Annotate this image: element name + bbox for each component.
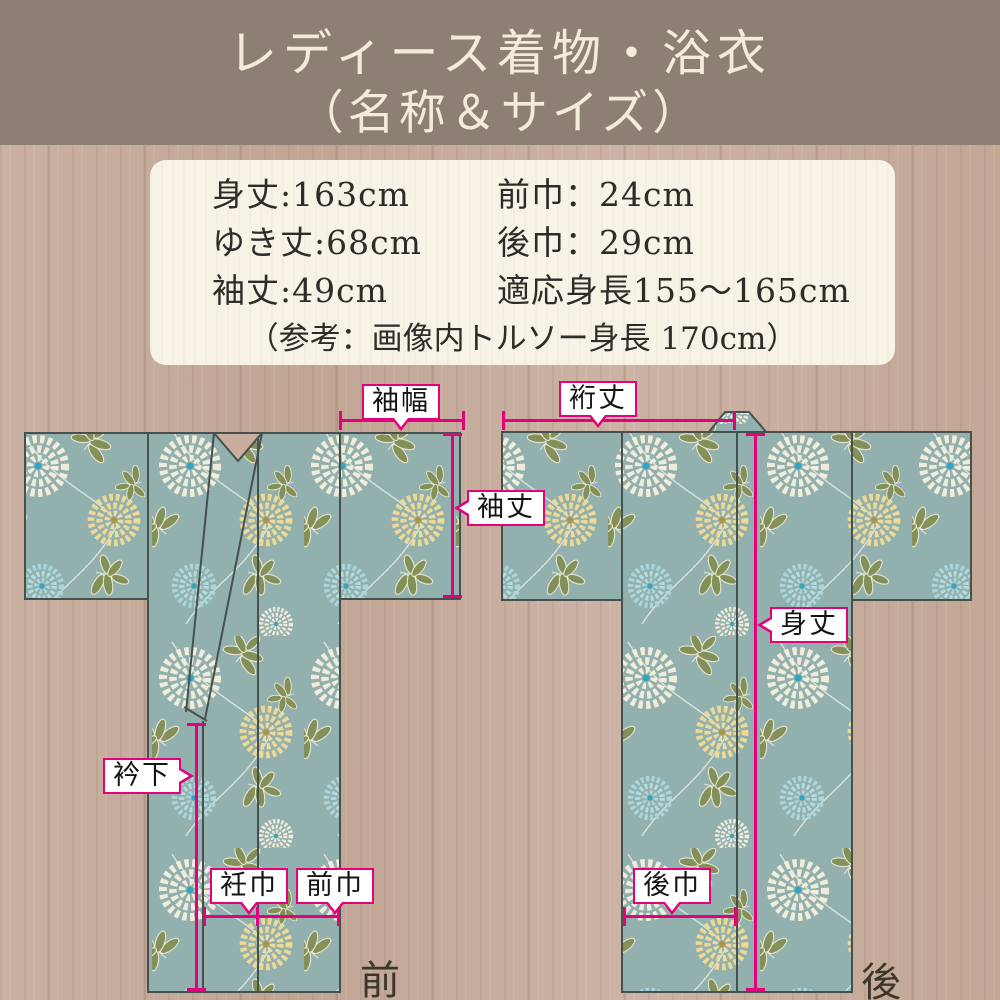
kimono-size-infographic: レディース着物・浴衣 （名称＆サイズ） 身丈:163cm ゆき丈:68cm 袖丈… xyxy=(0,0,1000,1000)
label-back-width: 後巾 xyxy=(633,868,711,904)
yuki-length-measure-line xyxy=(502,419,736,422)
label-okumi-width: 衽巾 xyxy=(210,868,288,904)
front-view-caption: 前 xyxy=(360,948,401,1000)
label-yuki-length: 裄丈 xyxy=(559,381,637,417)
okumi-front-width-measure-line xyxy=(203,915,340,918)
back-right-sleeve xyxy=(852,432,971,600)
back-width-measure-line xyxy=(623,915,737,918)
body-length-measure-line xyxy=(754,433,757,991)
front-left-sleeve xyxy=(25,433,148,599)
label-front-width: 前巾 xyxy=(296,868,374,904)
front-right-sleeve xyxy=(340,433,460,599)
back-collar-notch xyxy=(708,412,767,433)
label-body-length: 身丈 xyxy=(770,607,848,643)
back-view-caption: 後 xyxy=(861,950,902,1000)
label-sleeve-length: 袖丈 xyxy=(467,490,545,526)
label-collar-below: 衿下 xyxy=(103,758,181,794)
back-kimono xyxy=(502,412,971,992)
label-sleeve-width: 袖幅 xyxy=(362,384,440,420)
collar-below-measure-line xyxy=(195,723,198,991)
